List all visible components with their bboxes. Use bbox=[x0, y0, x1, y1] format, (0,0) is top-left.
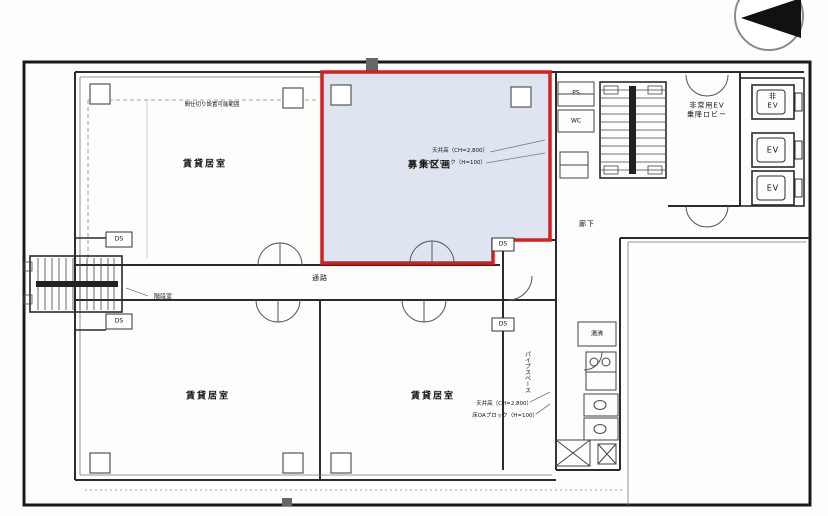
stair-room-label: 階段室 bbox=[154, 292, 172, 301]
frame-tick bbox=[366, 58, 378, 72]
highlight-floor-annotation: 床OAブロック（H=100） bbox=[420, 158, 486, 166]
lower-ceiling-annotation: 天井高（CH=2,800） bbox=[476, 399, 532, 407]
frame-tick bbox=[282, 498, 292, 506]
room-label-upper-left: 賃貸居室 bbox=[183, 157, 227, 170]
corridor-label: 通路 bbox=[312, 273, 328, 283]
restroom-fixtures bbox=[556, 322, 618, 466]
ds-label: DS bbox=[499, 321, 507, 328]
elevator-label-3: EV bbox=[767, 184, 780, 193]
ps-shaft-label: PS bbox=[572, 90, 579, 97]
ev-lobby-label: 非常用EV 乗降ロビー bbox=[687, 101, 727, 119]
north-arrow-icon bbox=[735, 0, 803, 50]
kitchenette-label: 湯沸 bbox=[591, 329, 603, 338]
wc-shaft-label: WC bbox=[571, 118, 581, 125]
ceiling-note-label: 間仕切り設置可能範囲 bbox=[184, 100, 239, 108]
hallway-label: 廊下 bbox=[579, 219, 595, 229]
room-label-lower-left: 賃貸居室 bbox=[186, 389, 230, 402]
ds-label: DS bbox=[499, 241, 507, 248]
room-label-lower-center: 賃貸居室 bbox=[411, 389, 455, 402]
floorplan-linework bbox=[0, 0, 828, 516]
elevator-label-2: EV bbox=[767, 146, 780, 155]
floorplan-canvas: 賃貸居室 募集区画 賃貸居室 賃貸居室 通路 廊下 非常用EV 乗降ロビー 非 … bbox=[0, 0, 828, 516]
ds-label: DS bbox=[115, 236, 123, 243]
pipe-shaft-label: パイプスペース bbox=[523, 351, 532, 393]
stairs-core-icon bbox=[600, 82, 666, 178]
lower-floor-annotation: 床OAブロック（H=100） bbox=[472, 411, 538, 419]
highlight-ceiling-annotation: 天井高（CH=2,800） bbox=[432, 146, 488, 154]
elevator-label-emergency: 非 EV bbox=[767, 92, 778, 110]
ds-label: DS bbox=[115, 318, 123, 325]
